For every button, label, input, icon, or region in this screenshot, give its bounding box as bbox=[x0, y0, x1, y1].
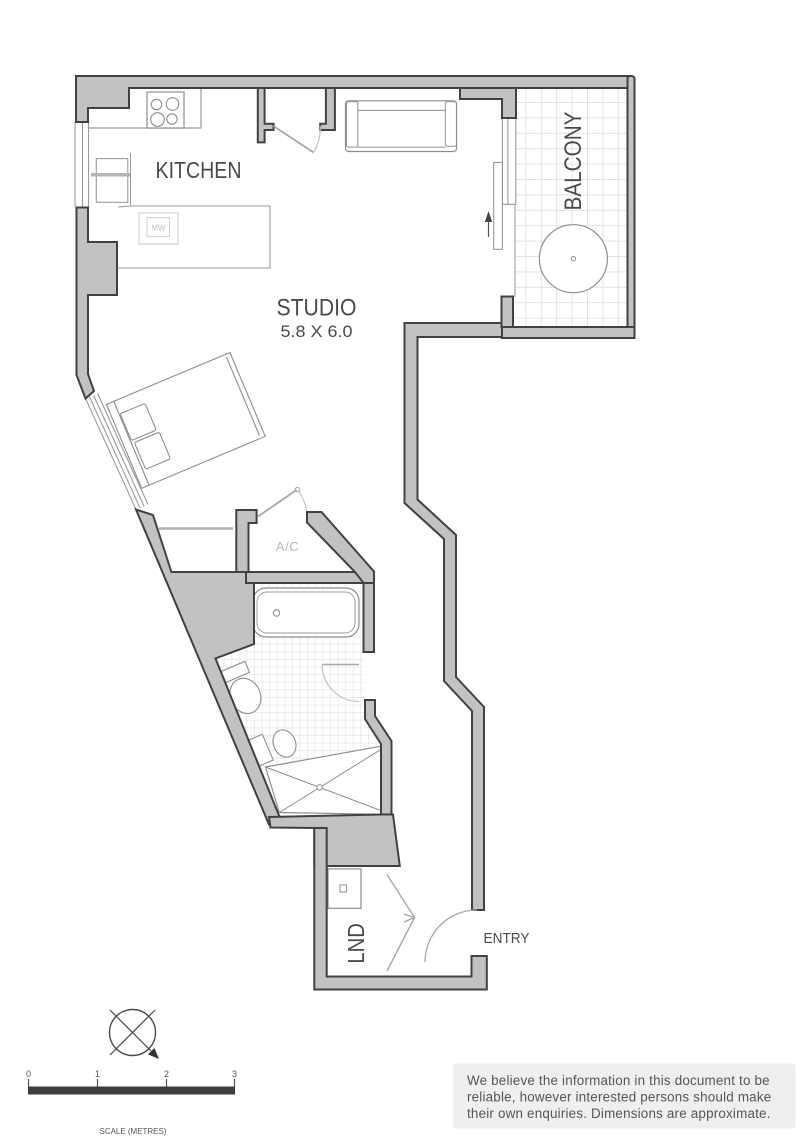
svg-text:3: 3 bbox=[232, 1069, 237, 1079]
svg-text:ENTRY: ENTRY bbox=[484, 930, 530, 947]
svg-text:2: 2 bbox=[164, 1069, 169, 1079]
svg-text:LND: LND bbox=[343, 923, 369, 964]
svg-text:STUDIO: STUDIO bbox=[277, 295, 357, 322]
svg-text:BALCONY: BALCONY bbox=[560, 112, 587, 211]
svg-text:A/C: A/C bbox=[276, 539, 299, 554]
svg-text:MW: MW bbox=[151, 224, 166, 233]
svg-text:5.8 X 6.0: 5.8 X 6.0 bbox=[281, 322, 353, 341]
svg-text:KITCHEN: KITCHEN bbox=[156, 157, 242, 183]
svg-text:1: 1 bbox=[95, 1069, 100, 1079]
svg-text:reliable, however interested p: reliable, however interested persons sho… bbox=[467, 1090, 771, 1105]
svg-text:0: 0 bbox=[26, 1069, 31, 1079]
svg-text:their own enquiries. Dimension: their own enquiries. Dimensions are appr… bbox=[467, 1106, 771, 1121]
svg-text:We believe the information in: We believe the information in this docum… bbox=[467, 1073, 770, 1088]
svg-text:SCALE (METRES): SCALE (METRES) bbox=[100, 1126, 167, 1136]
